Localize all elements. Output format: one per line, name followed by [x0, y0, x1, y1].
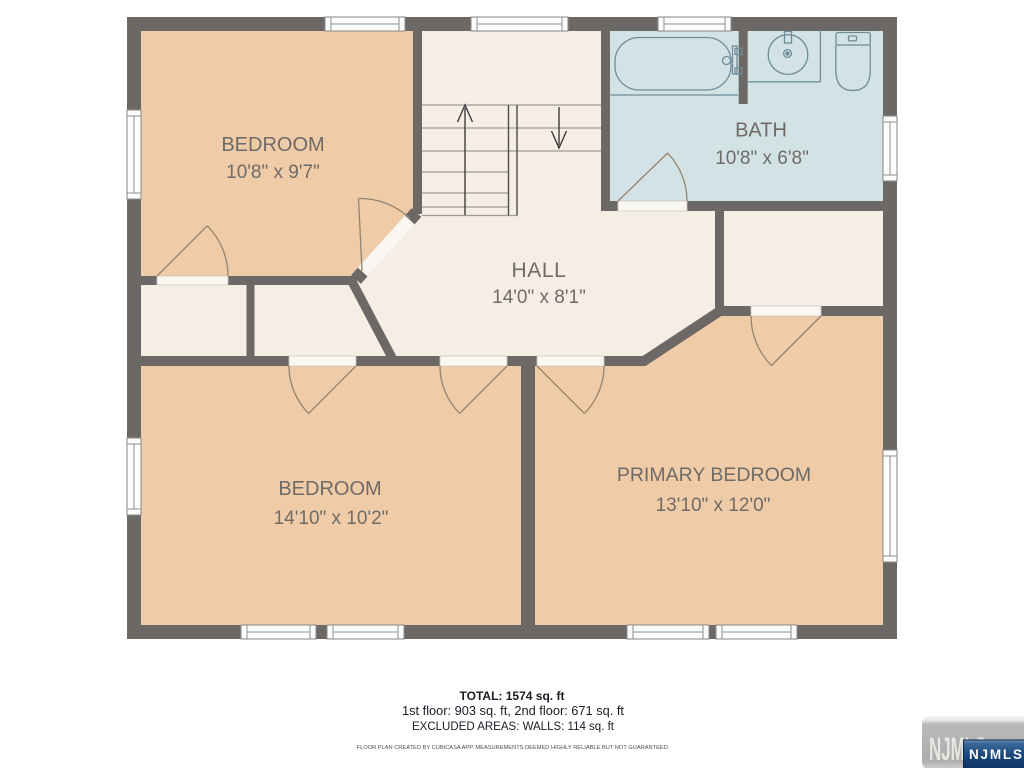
svg-text:BEDROOM: BEDROOM: [278, 478, 381, 500]
svg-text:14'10" x 10'2": 14'10" x 10'2": [274, 508, 389, 529]
svg-text:BATH: BATH: [735, 120, 787, 142]
svg-text:13'10" x 12'0": 13'10" x 12'0": [656, 495, 771, 516]
svg-text:TOTAL: 1574 sq. ft: TOTAL: 1574 sq. ft: [460, 689, 565, 703]
svg-text:BEDROOM: BEDROOM: [221, 134, 324, 156]
svg-text:10'8" x 6'8": 10'8" x 6'8": [715, 148, 809, 169]
svg-text:1st floor: 903 sq. ft, 2nd flo: 1st floor: 903 sq. ft, 2nd floor: 671 sq…: [402, 703, 624, 718]
svg-text:NJMLS: NJMLS: [969, 747, 1024, 762]
svg-text:HALL: HALL: [512, 259, 567, 282]
svg-text:PRIMARY BEDROOM: PRIMARY BEDROOM: [617, 464, 811, 486]
svg-text:14'0" x 8'1": 14'0" x 8'1": [492, 287, 586, 308]
svg-text:FLOOR PLAN CREATED BY CUBICASA: FLOOR PLAN CREATED BY CUBICASA APP. MEAS…: [357, 745, 670, 751]
svg-text:10'8" x 9'7": 10'8" x 9'7": [226, 162, 320, 183]
svg-text:EXCLUDED AREAS: WALLS: 114 sq.: EXCLUDED AREAS: WALLS: 114 sq. ft: [412, 721, 615, 733]
